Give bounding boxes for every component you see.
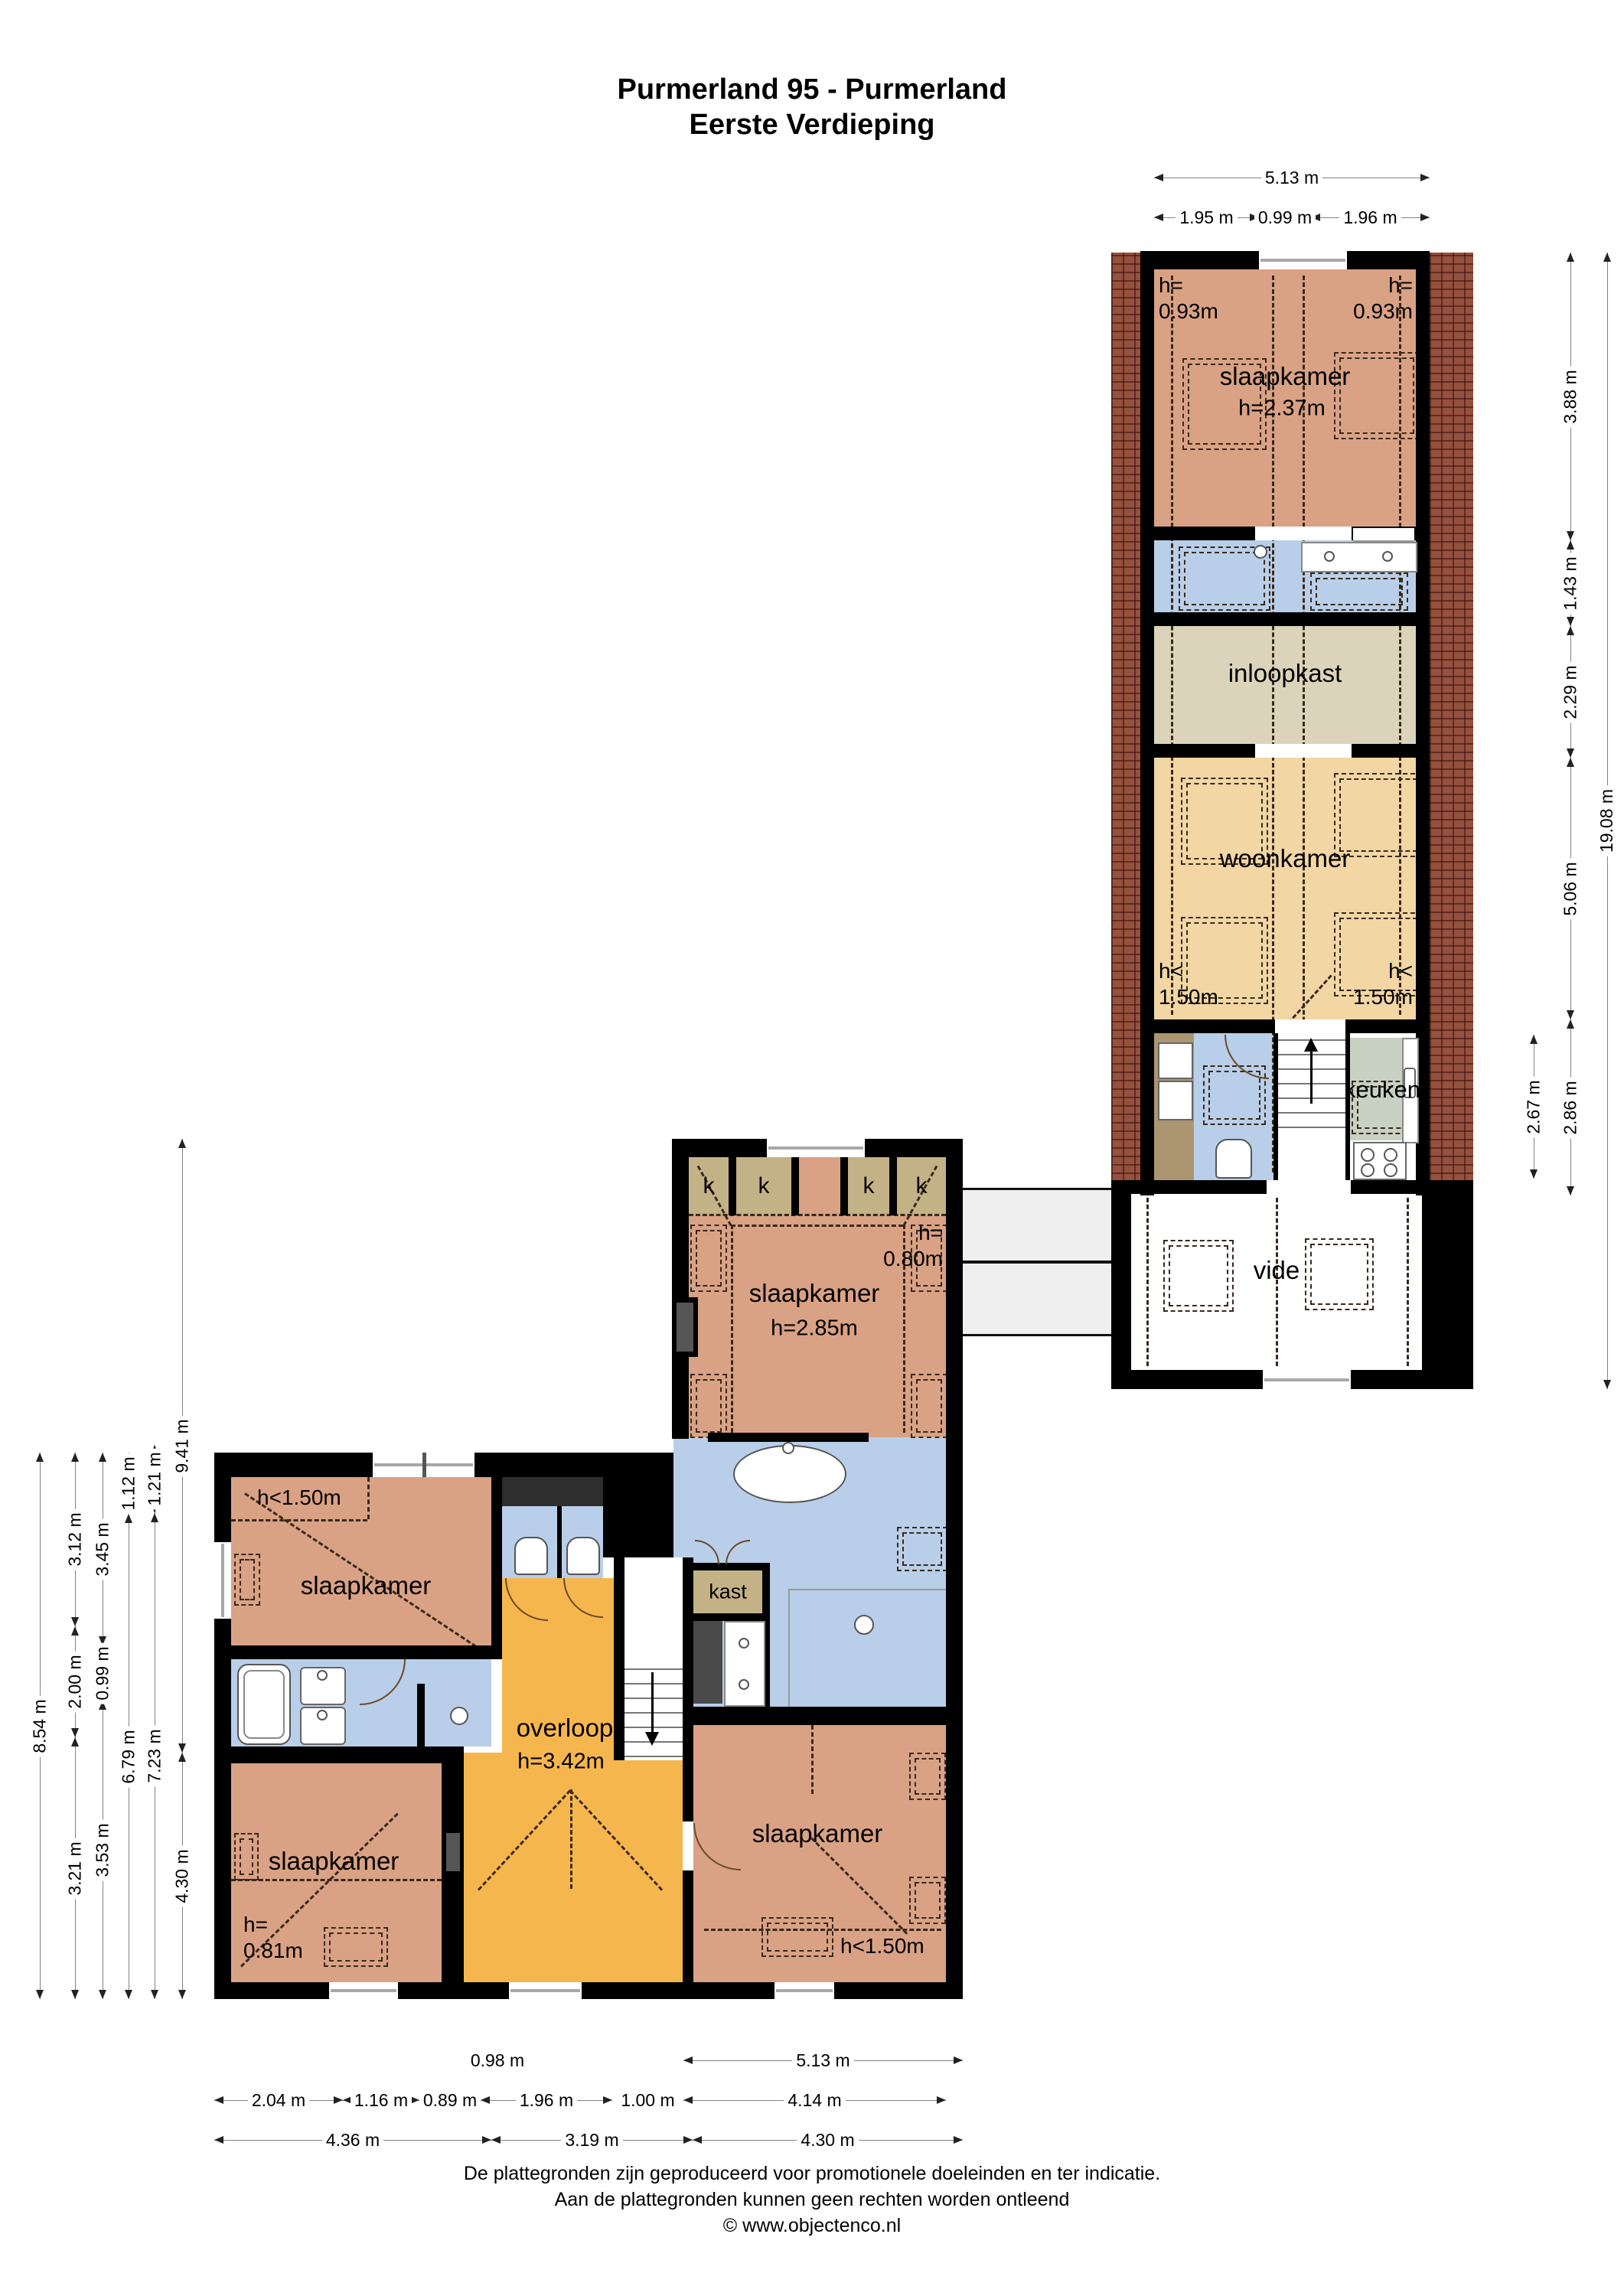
dimension: 19.08 m [1596,253,1619,1389]
wall [1422,1180,1473,1389]
roof-strip-right [1430,253,1473,1182]
shower-partition [788,1589,946,1590]
vanity-double-sink [724,1621,765,1707]
window-sash [331,1989,396,1992]
dimension-label: 2.86 m [1560,1077,1581,1138]
window [774,1982,834,1999]
dimension-label: 5.06 m [1560,858,1581,919]
dimension: 2.67 m [1522,1035,1545,1179]
burner [1384,1148,1397,1162]
dimension-label: 4.30 m [797,2130,858,2151]
wall [1140,251,1154,1195]
wall-stub [840,1157,848,1215]
dashed-outline [234,1554,260,1606]
dimension-label: 4.36 m [322,2130,383,2151]
room-label-woonkamer: woonkamer [1220,844,1351,873]
dimension: 2.04 m [214,2089,343,2112]
note-line: h= [842,1220,943,1246]
dimension: 1.21 m [143,1445,166,1513]
dimension-label: 1.96 m [516,2090,577,2111]
dimension-label: 0.98 m [467,2050,528,2071]
dimension-label: 2.04 m [248,2090,309,2111]
note-line: h= [1159,272,1218,298]
room-height-slaapkamer-master: h=2.85m [771,1316,858,1342]
dimension: 1.95 m [1154,206,1259,229]
wall [557,1506,562,1578]
wall [687,1613,770,1621]
shower-head-icon [854,1615,874,1635]
note-line: h<1.50m [257,1485,341,1511]
note-line: 1.50m [1313,984,1413,1010]
dimension-label: 1.21 m [145,1448,165,1509]
dimension: 0.98 m [429,2049,566,2072]
dimension: 1.00 m [612,2089,683,2112]
wall [603,1477,673,1557]
window [373,1453,474,1477]
floorplan-canvas: Purmerland 95 - Purmerland Eerste Verdie… [0,0,1624,2296]
dashed-line [1171,276,1173,1015]
note-line: h<1.50m [840,1933,925,1959]
room-label-slaapkamer-southeast: slaapkamer [752,1819,883,1848]
dimension-label: 19.08 m [1597,785,1618,856]
window-sash [1260,259,1345,262]
dimension: 4.30 m [693,2128,963,2151]
faucet-icon [317,1710,328,1720]
height-note-southwest: h= 0.81m [243,1912,303,1964]
note-line: h= [1313,272,1413,298]
note-line: h< [1313,958,1413,984]
dashed-line [231,1519,367,1521]
window-sash [768,1146,863,1150]
faucet-icon [1382,551,1393,562]
stair-arrow [651,1672,654,1733]
dimension: 5.13 m [1154,166,1430,189]
wall [683,1870,693,1982]
dimension-label: 5.13 m [792,2050,853,2071]
height-note-southeast: h<1.50m [840,1933,925,1959]
connector-band-2 [963,1261,1111,1336]
stair-arrow [1310,1050,1313,1104]
dimension-label: 1.96 m [1339,207,1401,228]
dimension: 4.14 m [683,2089,946,2112]
dimension-label: 7.23 m [145,1725,165,1786]
dimension: 5.13 m [683,2049,963,2072]
toilet-icon [514,1537,548,1575]
dimension-label: 1.00 m [617,2090,678,2111]
note-line: h= [243,1912,303,1938]
dimension-label: 3.12 m [65,1508,86,1570]
window [1259,251,1347,269]
closet-label-k: k [703,1173,715,1199]
note-line: h< [1159,958,1218,984]
height-note-woonkamer-left: h< 1.50m [1159,958,1218,1010]
dimension: 1.96 m [1311,206,1430,229]
dimension: 1.43 m [1559,540,1582,626]
note-line: 0.93m [1313,298,1413,325]
wall-opening [1353,528,1414,542]
dimension-label: 4.30 m [172,1845,193,1906]
dimension: 3.53 m [91,1701,114,1999]
wall [708,1433,869,1442]
window [509,1982,582,1999]
room-label-slaapkamer-master: slaapkamer [749,1279,880,1308]
room-label-overloop: overloop [517,1714,614,1743]
dimension: 1.12 m [117,1453,140,1514]
dimension-label: 0.89 m [419,2090,481,2111]
dimension: 9.41 m [171,1139,194,1753]
dimension: 3.12 m [64,1453,86,1626]
dashed-outline [690,1374,727,1438]
dashed-outline [1305,1238,1374,1310]
room-height-slaapkamer-attic: h=2.37m [1238,396,1326,422]
dimension-label: 2.67 m [1524,1076,1544,1137]
stair-arrow-head [1304,1038,1318,1052]
height-note-woonkamer-right: h< 1.50m [1313,958,1413,1010]
wall-opening [1267,1180,1351,1194]
page-title-line2: Eerste Verdieping [0,109,1624,142]
page-title-line1: Purmerland 95 - Purmerland [0,73,1624,106]
burner [1361,1148,1375,1162]
dashed-line [1146,1198,1149,1366]
closet-label-k: k [916,1173,928,1199]
shower-head-icon [450,1707,468,1725]
dimension-label: 8.54 m [30,1695,51,1756]
dashed-line [811,1725,814,1794]
wall [214,1645,502,1659]
wall [672,1139,689,1439]
faucet-icon [317,1670,328,1681]
room-label-slaapkamer-west: slaapkamer [301,1571,432,1600]
dashed-outline [1163,1240,1234,1312]
toilet-icon [566,1537,600,1575]
dimension-label: 2.00 m [65,1651,86,1712]
dimension: 3.21 m [64,1737,86,1999]
dimension-label: 0.99 m [93,1642,113,1704]
dimension: 0.99 m [1259,206,1311,229]
window [329,1982,398,1999]
dimension: 3.45 m [91,1453,114,1645]
dimension: 2.29 m [1559,626,1582,758]
dashed-outline [1310,572,1408,611]
room-label-slaapkamer-attic: slaapkamer [1220,362,1351,391]
dashed-outline [761,1917,833,1957]
room-label-keuken: keuken [1344,1076,1420,1104]
faucet-icon [739,1638,749,1649]
dimension-label: 1.43 m [1560,553,1581,614]
dimension-label: 9.41 m [172,1415,193,1476]
wall-opening [1255,527,1352,540]
wall [683,1707,946,1725]
height-note-west: h<1.50m [257,1485,341,1511]
dashed-line [570,1789,572,1889]
wall-stub [791,1157,799,1215]
dashed-outline [324,1927,388,1967]
note-line: 0.93m [1159,298,1218,325]
dimension-label: 0.99 m [1254,207,1316,228]
dimension: 1.16 m [343,2089,419,2112]
dashed-line [731,1225,733,1433]
burner [1361,1163,1375,1177]
wall [417,1684,425,1746]
dimension: 2.86 m [1559,1019,1582,1195]
wall [683,1760,693,1821]
dark-cabinet [693,1621,722,1704]
wall-opening [1255,744,1352,758]
faucet-icon [1324,551,1335,562]
window [767,1139,865,1157]
dashed-line [1399,276,1401,1015]
vanity-double-sink [1301,542,1417,572]
dimension-label: 4.14 m [784,2090,845,2111]
toilet-icon [1215,1139,1252,1179]
wall [214,1453,231,1999]
dimension: 5.06 m [1559,758,1582,1019]
height-note-attic-left: h= 0.93m [1159,272,1218,325]
dimension: 4.36 m [214,2128,491,2151]
dimension: 7.23 m [143,1513,166,1999]
dimension: 1.96 m [481,2089,612,2112]
dark-niche [446,1833,460,1871]
dimension: 6.79 m [117,1514,140,1999]
window-mullion [422,1453,426,1477]
wall [683,1557,693,1760]
dashed-outline [911,1374,947,1438]
closet-label-k: k [758,1173,770,1199]
washer-icon [1158,1042,1193,1079]
note-line: 0.80m [842,1246,943,1272]
dimension-label: 3.53 m [93,1819,113,1880]
faucet-icon [739,1679,749,1690]
wall [614,1557,624,1760]
dark-niche [502,1477,603,1506]
closet-label-k: k [863,1173,875,1199]
wall [491,1477,502,1659]
room-label-kast: kast [709,1580,747,1604]
wall [946,1139,963,1999]
room-label-vide: vide [1254,1256,1300,1285]
wall [1154,612,1416,626]
faucet-icon [782,1442,794,1454]
dashed-line [1407,1198,1409,1366]
dimension: 0.99 m [91,1645,114,1701]
dimension: 8.54 m [28,1453,51,1999]
window [214,1542,231,1619]
window-sash [1264,1378,1349,1381]
dimension: 0.89 m [419,2089,481,2112]
dashed-outline [909,1877,946,1924]
dimension-label: 1.95 m [1176,207,1237,228]
note-line: 1.50m [1159,984,1218,1010]
dimension-label: 6.79 m [119,1726,139,1787]
dashed-outline [690,1225,727,1292]
dimension-label: 3.88 m [1560,366,1581,427]
connector-band-1 [963,1188,1111,1263]
room-label-inloopkast: inloopkast [1228,659,1342,688]
dimension-label: 2.29 m [1560,661,1581,722]
dimension: 2.00 m [64,1626,86,1737]
stove-icon [1353,1142,1407,1180]
wall [1345,1033,1350,1180]
footer-line1: De plattegronden zijn geproduceerd voor … [0,2163,1624,2185]
dimension-label: 3.45 m [93,1518,113,1580]
height-note-master-dormer: h= 0.80m [842,1220,943,1272]
dashed-outline [897,1527,947,1571]
burner [1384,1163,1397,1177]
dimension-label: 3.21 m [65,1838,86,1899]
wall-stub [889,1157,897,1215]
wall [214,1982,963,1999]
note-line: 0.81m [243,1938,303,1964]
shower-partition [788,1589,790,1707]
footer-line3: © www.objectenco.nl [0,2215,1624,2237]
dimension: 3.88 m [1559,253,1582,540]
dimension: 4.30 m [171,1753,194,1999]
dashed-outline [234,1833,259,1880]
bathtub-rect [237,1664,291,1745]
chimney-inner [677,1303,693,1352]
footer-line2: Aan de plattegronden kunnen geen rechten… [0,2189,1624,2211]
washer-icon [1158,1081,1193,1120]
window [1263,1370,1351,1389]
wall [1111,1180,1131,1389]
dashed-line [367,1477,370,1519]
dashed-outline [909,1753,946,1800]
dimension-label: 5.13 m [1261,168,1322,188]
dimension-label: 1.12 m [119,1453,139,1514]
dashed-line [231,1879,442,1881]
shower-head-icon [1254,545,1267,559]
window-sash [776,1989,833,1992]
stair-arrow-head [645,1732,659,1746]
room-height-overloop: h=3.42m [517,1750,605,1775]
window-sash [221,1544,224,1617]
dimension-label: 1.16 m [351,2090,412,2111]
wall-opening [1275,1019,1345,1033]
room-label-slaapkamer-southwest: slaapkamer [269,1847,399,1876]
window-sash [510,1989,580,1992]
dimension-label: 3.19 m [561,2130,622,2151]
wall-stub [729,1157,736,1215]
height-note-attic-right: h= 0.93m [1313,272,1413,325]
dimension: 3.19 m [491,2128,693,2151]
wall [214,1746,463,1763]
